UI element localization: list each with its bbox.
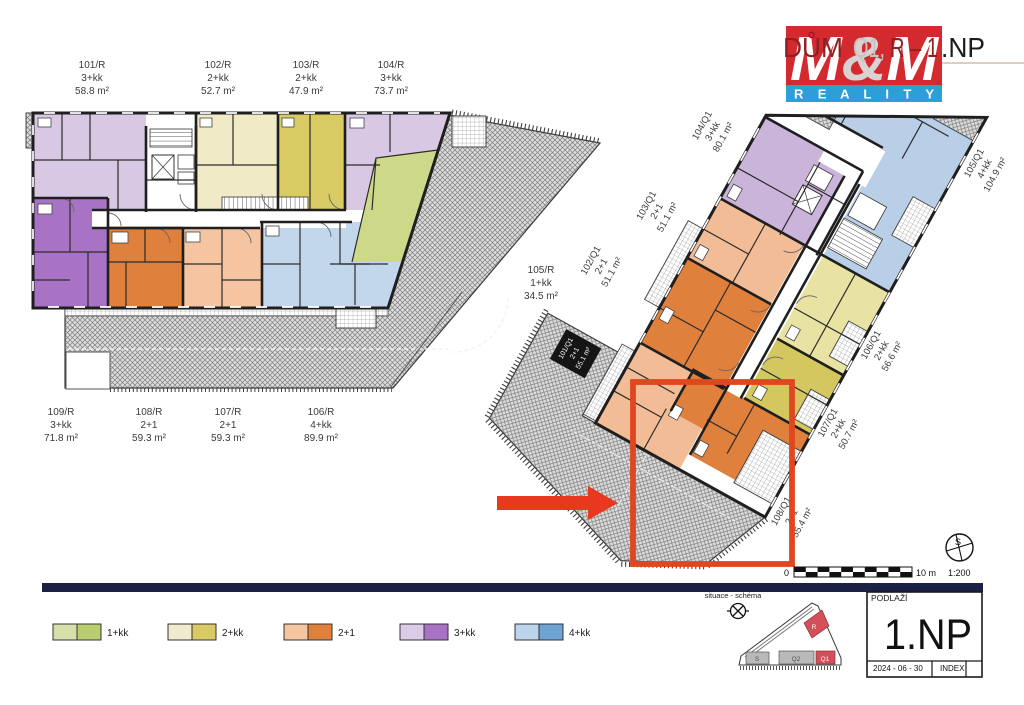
svg-text:58.8 m²: 58.8 m² <box>75 86 110 97</box>
svg-text:2+1: 2+1 <box>141 420 158 431</box>
svg-text:47.9 m²: 47.9 m² <box>289 86 324 97</box>
svg-text:1:200: 1:200 <box>948 568 971 578</box>
svg-text:105/R: 105/R <box>528 265 555 276</box>
svg-text:3+kk: 3+kk <box>454 628 476 639</box>
svg-text:DŮM: DŮM <box>783 31 843 63</box>
svg-text:10 m: 10 m <box>916 568 936 578</box>
svg-text:.NP: .NP <box>941 32 985 63</box>
svg-text:R – 1: R – 1 <box>890 32 938 63</box>
svg-text:4+kk: 4+kk <box>569 628 591 639</box>
svg-text:34.5 m²: 34.5 m² <box>524 291 559 302</box>
svg-text:59.3 m²: 59.3 m² <box>132 433 167 444</box>
svg-text:102/R: 102/R <box>205 60 232 71</box>
svg-text:2024 - 06 - 30: 2024 - 06 - 30 <box>873 664 923 673</box>
svg-text:4+kk: 4+kk <box>310 420 332 431</box>
svg-text:73.7 m²: 73.7 m² <box>374 86 409 97</box>
svg-text:109/R: 109/R <box>48 407 75 418</box>
svg-text:0: 0 <box>784 568 789 578</box>
svg-text:PODLAŽÍ: PODLAŽÍ <box>871 593 908 603</box>
svg-text:107/R: 107/R <box>215 407 242 418</box>
svg-text:59.3 m²: 59.3 m² <box>211 433 246 444</box>
svg-text:103/R: 103/R <box>293 60 320 71</box>
svg-text:2+kk: 2+kk <box>207 73 229 84</box>
svg-text:101/R: 101/R <box>79 60 106 71</box>
svg-text:S: S <box>955 537 961 547</box>
svg-text:Q2: Q2 <box>792 656 801 663</box>
svg-text:89.9 m²: 89.9 m² <box>304 433 339 444</box>
svg-text:R: R <box>812 624 817 631</box>
svg-text:2+1: 2+1 <box>220 420 237 431</box>
svg-text:S: S <box>755 656 760 663</box>
svg-text:1+kk: 1+kk <box>530 278 552 289</box>
svg-text:52.7 m²: 52.7 m² <box>201 86 236 97</box>
svg-text:2+1: 2+1 <box>338 628 355 639</box>
svg-text:71.8 m²: 71.8 m² <box>44 433 79 444</box>
svg-text:Q1,: Q1, <box>853 32 885 63</box>
svg-text:106/R: 106/R <box>308 407 335 418</box>
svg-text:108/R: 108/R <box>136 407 163 418</box>
svg-text:INDEX: INDEX <box>940 664 965 673</box>
svg-text:situace - schéma: situace - schéma <box>705 591 763 600</box>
svg-text:3+kk: 3+kk <box>380 73 402 84</box>
svg-text:Q1: Q1 <box>821 656 830 663</box>
svg-text:2+kk: 2+kk <box>295 73 317 84</box>
svg-text:2+kk: 2+kk <box>222 628 244 639</box>
svg-text:1+kk: 1+kk <box>107 628 129 639</box>
svg-text:1.NP: 1.NP <box>884 611 972 659</box>
svg-text:104/R: 104/R <box>378 60 405 71</box>
svg-text:3+kk: 3+kk <box>50 420 72 431</box>
svg-text:3+kk: 3+kk <box>81 73 103 84</box>
